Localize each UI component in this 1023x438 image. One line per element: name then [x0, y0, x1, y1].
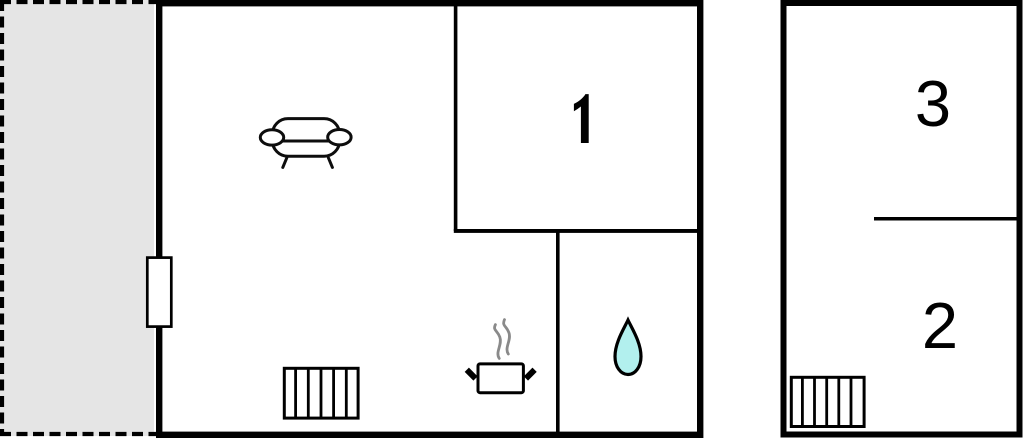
svg-text:2: 2	[922, 289, 958, 362]
svg-text:3: 3	[915, 67, 951, 140]
